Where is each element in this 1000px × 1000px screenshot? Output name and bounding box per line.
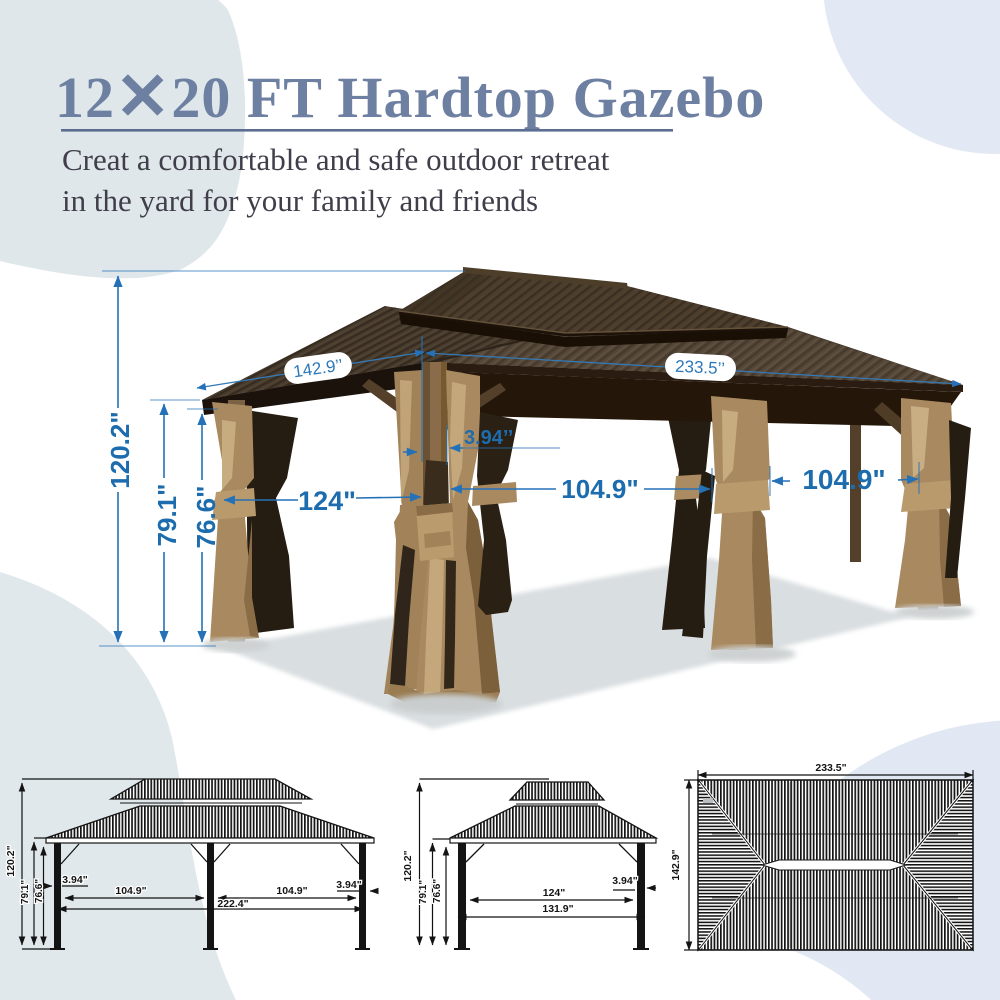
svg-text:3.94": 3.94" — [612, 875, 637, 887]
svg-text:76.6": 76.6" — [432, 879, 443, 903]
svg-text:120.2": 120.2" — [105, 411, 135, 488]
svg-text:222.4": 222.4" — [217, 898, 248, 910]
svg-text:3.94": 3.94" — [336, 879, 361, 891]
svg-text:131.9": 131.9" — [542, 903, 573, 915]
svg-text:76.6": 76.6" — [34, 879, 45, 903]
svg-text:in the yard for your family an: in the yard for your family and friends — [62, 183, 538, 218]
svg-text:79.1": 79.1" — [418, 880, 429, 904]
svg-text:104.9": 104.9" — [115, 885, 146, 897]
svg-text:104.9": 104.9" — [802, 464, 885, 495]
svg-text:Creat a comfortable and safe o: Creat a comfortable and safe outdoor ret… — [62, 142, 610, 177]
svg-text:79.1": 79.1" — [20, 880, 31, 904]
svg-text:76.6": 76.6" — [191, 486, 221, 549]
svg-text:3.94": 3.94" — [62, 874, 87, 886]
svg-text:124": 124" — [543, 887, 566, 899]
svg-text:104.9": 104.9" — [561, 474, 638, 504]
svg-text:233.5": 233.5" — [815, 762, 846, 774]
svg-text:142.9": 142.9" — [670, 849, 682, 880]
svg-text:79.1": 79.1" — [152, 484, 182, 547]
svg-text:233.5’’: 233.5’’ — [675, 357, 726, 379]
svg-text:12✕20 FT Hardtop Gazebo: 12✕20 FT Hardtop Gazebo — [55, 61, 765, 134]
svg-text:120.2": 120.2" — [5, 845, 17, 876]
svg-text:3.94’’: 3.94’’ — [464, 427, 513, 449]
svg-text:120.2": 120.2" — [402, 850, 414, 881]
svg-text:124": 124" — [298, 486, 356, 516]
svg-text:104.9": 104.9" — [276, 885, 307, 897]
